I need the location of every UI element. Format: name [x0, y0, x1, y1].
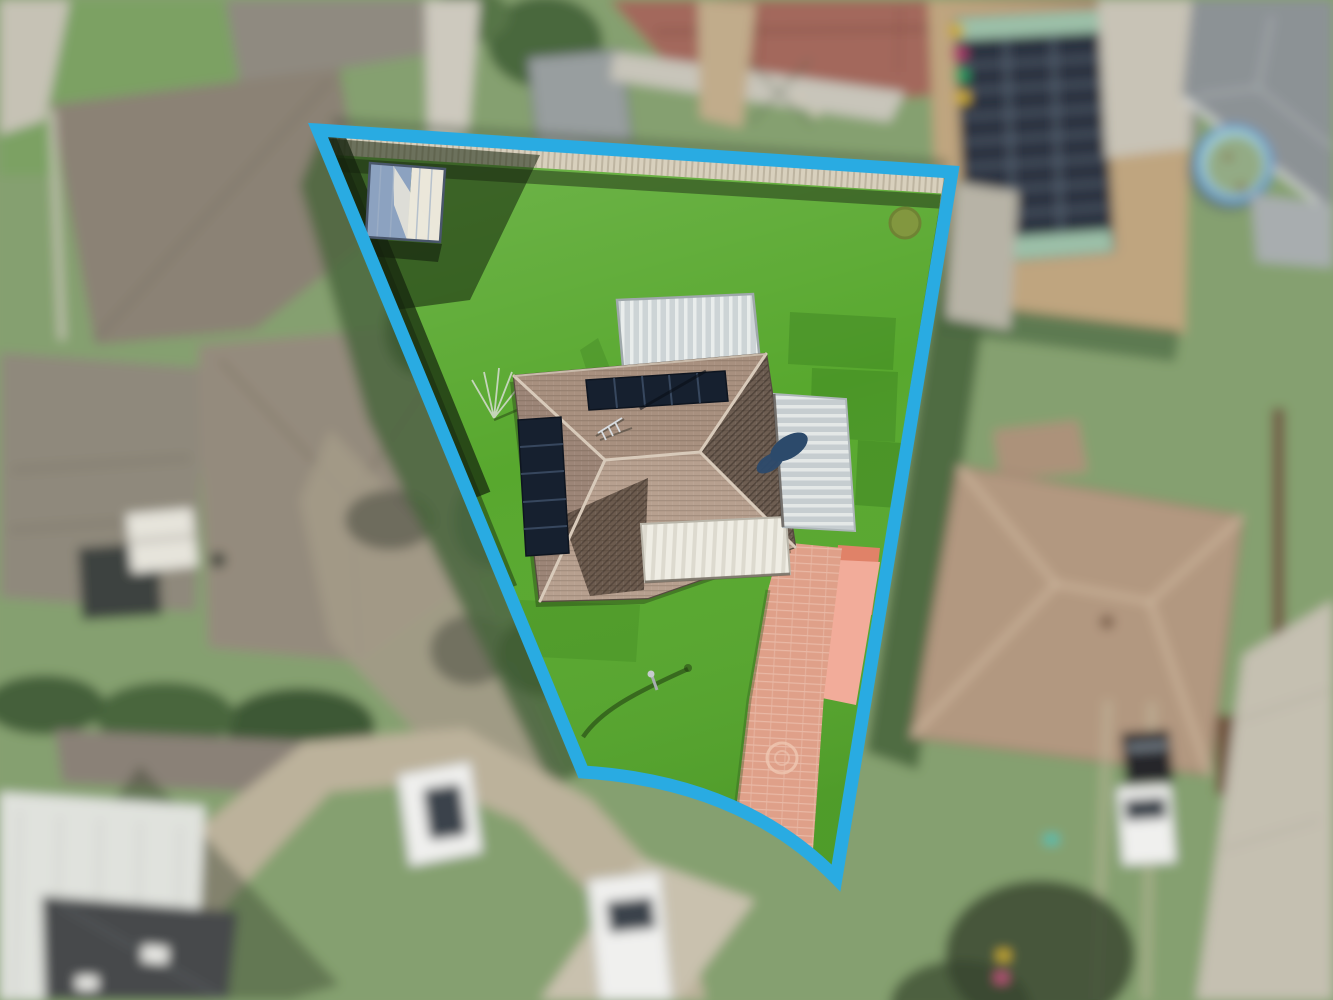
- parked-white-ute-2: [588, 872, 672, 1000]
- streetlight-head: [648, 671, 655, 678]
- aerial-photo-stage: [0, 0, 1333, 1000]
- concrete-apron: [1098, 0, 1195, 158]
- chimney: [1100, 615, 1114, 629]
- side-paving: [946, 182, 1018, 330]
- aerial-photo: [0, 0, 1333, 1000]
- garden-item-pink: [995, 972, 1008, 983]
- lawn-dark-patch: [788, 312, 896, 370]
- stepping-stone: [795, 93, 805, 103]
- ute-cab-window: [1124, 797, 1167, 821]
- lawn-dirt-patch: [890, 208, 920, 238]
- skylight: [76, 976, 98, 990]
- streetlight-shadow-head: [684, 664, 692, 672]
- wheelie-bin-pink: [952, 47, 967, 60]
- black-car-windshield: [1127, 745, 1168, 748]
- wheelie-bin-yellow: [949, 24, 964, 37]
- garden-item-yellow: [997, 950, 1010, 961]
- wheelie-bin-green: [954, 69, 969, 82]
- car-roof-glass: [423, 784, 468, 841]
- ute-2-window: [606, 897, 656, 933]
- pool-shed: [1251, 194, 1333, 268]
- garage-roof: [641, 517, 790, 582]
- pool-water: [1206, 136, 1264, 194]
- skylight: [141, 945, 168, 964]
- parked-white-ute: [1117, 785, 1176, 865]
- pool-float: [1223, 153, 1233, 161]
- neighbor-roof-wing: [993, 420, 1088, 480]
- solar-array-left: [518, 417, 569, 556]
- garden-item-teal: [1044, 834, 1059, 845]
- wheelie-bin-yellow: [955, 91, 970, 104]
- parked-black-car: [1121, 730, 1174, 785]
- roof-vent: [210, 552, 226, 568]
- stepping-stone: [810, 107, 820, 117]
- pool-float: [1235, 183, 1247, 191]
- carport-roof: [774, 394, 855, 531]
